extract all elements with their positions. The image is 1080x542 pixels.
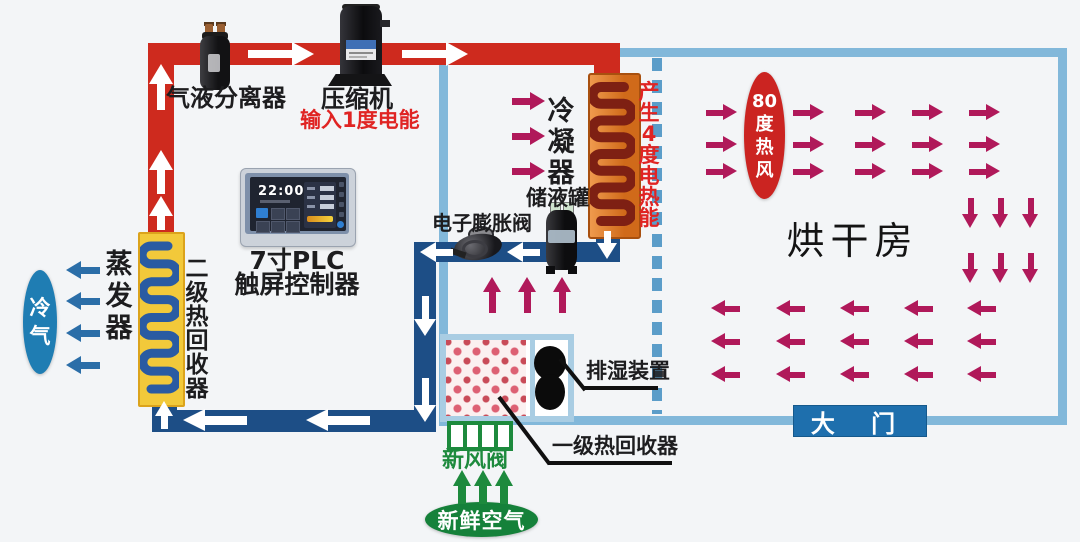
hot-airflow-arrow-icon xyxy=(967,333,996,350)
hot-airflow-arrow-icon xyxy=(855,136,886,153)
hot-airflow-arrow-icon xyxy=(962,198,979,228)
hot-airflow-arrow-icon xyxy=(793,136,824,153)
hot-airflow-arrow-icon xyxy=(840,300,869,317)
hot-airflow-arrow-icon xyxy=(706,104,737,121)
hot-airflow-arrow-icon xyxy=(912,163,943,180)
hot-airflow-arrow-icon xyxy=(776,333,805,350)
refrigerant-flow-arrow-icon xyxy=(597,231,618,259)
hot-airflow-arrow-icon xyxy=(706,136,737,153)
hot-airflow-arrow-icon xyxy=(840,366,869,383)
hot-airflow-arrow-icon xyxy=(553,277,572,313)
refrigerant-flow-arrow-icon xyxy=(149,196,173,230)
hot-airflow-arrow-icon xyxy=(776,300,805,317)
hot-airflow-arrow-icon xyxy=(518,277,537,313)
hot-airflow-arrow-icon xyxy=(711,333,740,350)
cold-airflow-arrow-icon xyxy=(66,292,100,311)
hot-airflow-arrow-icon xyxy=(483,277,502,313)
hot-airflow-arrow-icon xyxy=(776,366,805,383)
refrigerant-flow-arrow-icon xyxy=(155,401,174,429)
hot-airflow-arrow-icon xyxy=(962,253,979,283)
hot-airflow-arrow-icon xyxy=(967,366,996,383)
hot-airflow-arrow-icon xyxy=(711,300,740,317)
hot-airflow-arrow-icon xyxy=(706,163,737,180)
hot-airflow-arrow-icon xyxy=(969,136,1000,153)
hot-airflow-arrow-icon xyxy=(904,300,933,317)
hot-airflow-arrow-icon xyxy=(912,136,943,153)
hot-airflow-arrow-icon xyxy=(1022,253,1039,283)
hot-airflow-arrow-icon xyxy=(992,253,1009,283)
fresh-air-arrow-icon xyxy=(474,470,492,504)
hot-airflow-arrow-icon xyxy=(1022,198,1039,228)
fresh-air-arrow-icon xyxy=(495,470,513,504)
hot-airflow-arrow-icon xyxy=(992,198,1009,228)
airflow-arrows-layer xyxy=(0,0,1080,542)
heat-pump-dryer-diagram: 22:00 xyxy=(0,0,1080,542)
hot-airflow-arrow-icon xyxy=(904,333,933,350)
refrigerant-flow-arrow-icon xyxy=(402,42,468,66)
hot-airflow-arrow-icon xyxy=(711,366,740,383)
hot-airflow-arrow-icon xyxy=(969,104,1000,121)
refrigerant-flow-arrow-icon xyxy=(414,378,436,422)
hot-airflow-arrow-icon xyxy=(969,163,1000,180)
refrigerant-flow-arrow-icon xyxy=(248,42,314,66)
refrigerant-flow-arrow-icon xyxy=(183,409,247,432)
hot-airflow-arrow-icon xyxy=(512,162,545,181)
cold-airflow-arrow-icon xyxy=(66,261,100,280)
hot-airflow-arrow-icon xyxy=(967,300,996,317)
refrigerant-flow-arrow-icon xyxy=(306,409,370,432)
hot-airflow-arrow-icon xyxy=(793,104,824,121)
hot-airflow-arrow-icon xyxy=(912,104,943,121)
fresh-air-arrow-icon xyxy=(453,470,471,504)
hot-airflow-arrow-icon xyxy=(512,92,545,111)
hot-airflow-arrow-icon xyxy=(512,127,545,146)
cold-airflow-arrow-icon xyxy=(66,324,100,343)
refrigerant-flow-arrow-icon xyxy=(507,242,540,263)
hot-airflow-arrow-icon xyxy=(855,163,886,180)
refrigerant-flow-arrow-icon xyxy=(420,242,453,263)
hot-airflow-arrow-icon xyxy=(904,366,933,383)
cold-airflow-arrow-icon xyxy=(66,356,100,375)
hot-airflow-arrow-icon xyxy=(840,333,869,350)
hot-airflow-arrow-icon xyxy=(793,163,824,180)
hot-airflow-arrow-icon xyxy=(855,104,886,121)
refrigerant-flow-arrow-icon xyxy=(414,296,436,336)
refrigerant-flow-arrow-icon xyxy=(149,64,173,110)
refrigerant-flow-arrow-icon xyxy=(149,150,173,194)
